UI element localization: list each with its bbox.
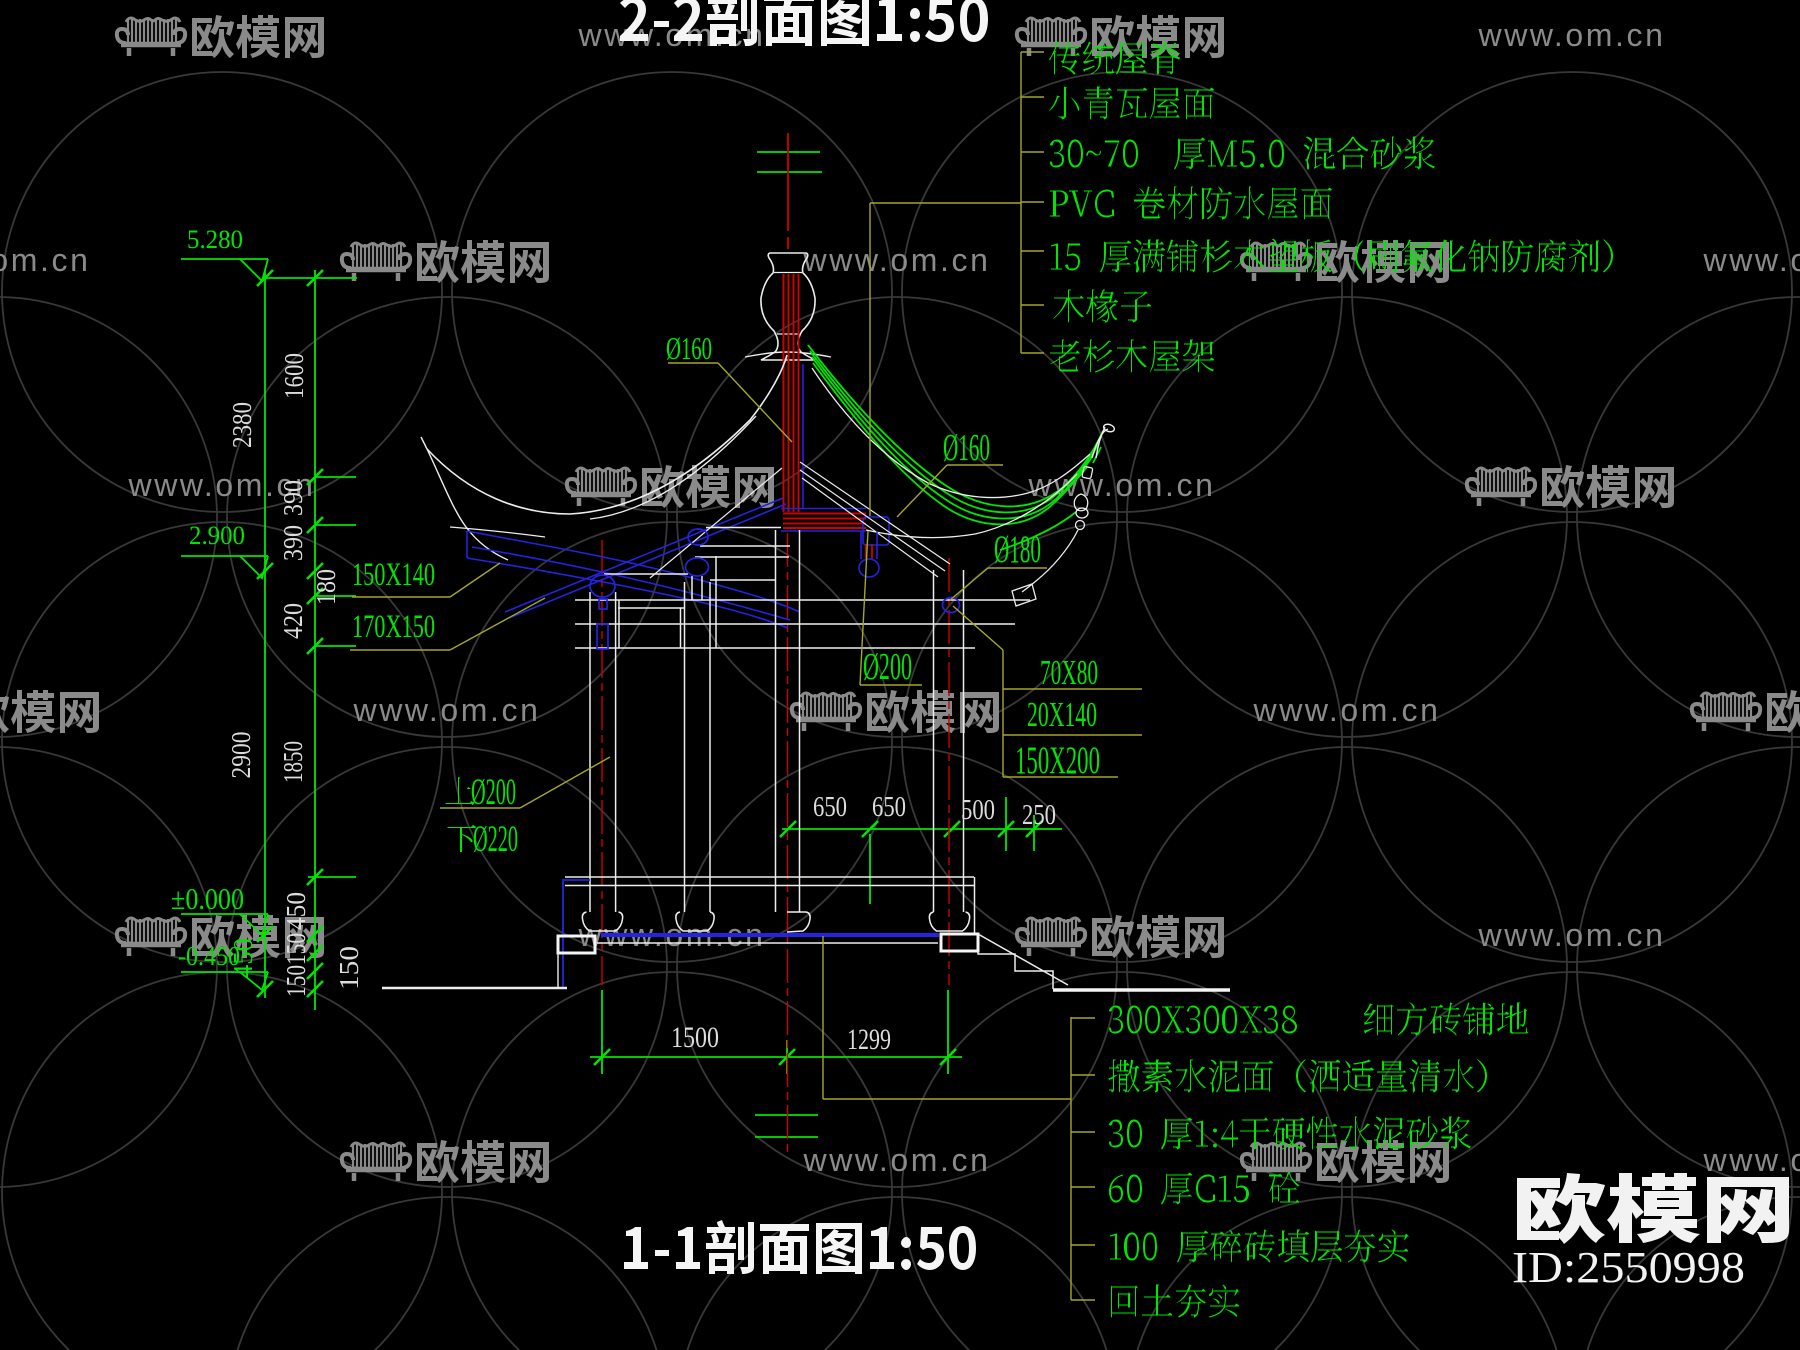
svg-text:±0.000: ±0.000 xyxy=(171,881,244,916)
svg-text:1299: 1299 xyxy=(847,1023,891,1056)
svg-text:180: 180 xyxy=(311,569,341,605)
svg-text:250: 250 xyxy=(1022,800,1056,831)
svg-text:650: 650 xyxy=(872,792,906,823)
svg-text:1600: 1600 xyxy=(279,353,309,399)
svg-text:Ø160: Ø160 xyxy=(666,330,712,366)
svg-text:150: 150 xyxy=(281,965,311,997)
svg-text:70X80: 70X80 xyxy=(1040,653,1098,692)
svg-text:390: 390 xyxy=(278,525,308,561)
svg-text:2.900: 2.900 xyxy=(189,521,245,550)
svg-text:1500: 1500 xyxy=(671,1021,719,1054)
svg-text:650: 650 xyxy=(813,792,847,823)
svg-text:170X150: 170X150 xyxy=(352,609,435,645)
svg-text:450: 450 xyxy=(281,892,311,930)
svg-text:420: 420 xyxy=(278,603,308,639)
svg-text:390: 390 xyxy=(278,480,308,516)
svg-text:Ø180: Ø180 xyxy=(994,528,1041,571)
svg-text:2380: 2380 xyxy=(227,402,257,448)
svg-text:5.280: 5.280 xyxy=(187,225,243,254)
svg-text:150: 150 xyxy=(281,933,311,965)
svg-text:ID:2550998: ID:2550998 xyxy=(1512,1243,1745,1292)
svg-text:1850: 1850 xyxy=(278,741,308,783)
svg-text:Ø160: Ø160 xyxy=(943,427,990,469)
svg-text:450: 450 xyxy=(228,938,258,978)
svg-text:20X140: 20X140 xyxy=(1027,695,1097,734)
svg-text:500: 500 xyxy=(961,795,995,826)
svg-text:150X200: 150X200 xyxy=(1015,739,1100,782)
svg-text:Ø200: Ø200 xyxy=(471,772,516,813)
svg-text:Ø220: Ø220 xyxy=(473,819,518,860)
svg-text:2900: 2900 xyxy=(226,732,256,779)
svg-text:150X140: 150X140 xyxy=(352,557,435,593)
svg-text:150: 150 xyxy=(334,946,364,990)
svg-text:Ø200: Ø200 xyxy=(863,646,912,688)
